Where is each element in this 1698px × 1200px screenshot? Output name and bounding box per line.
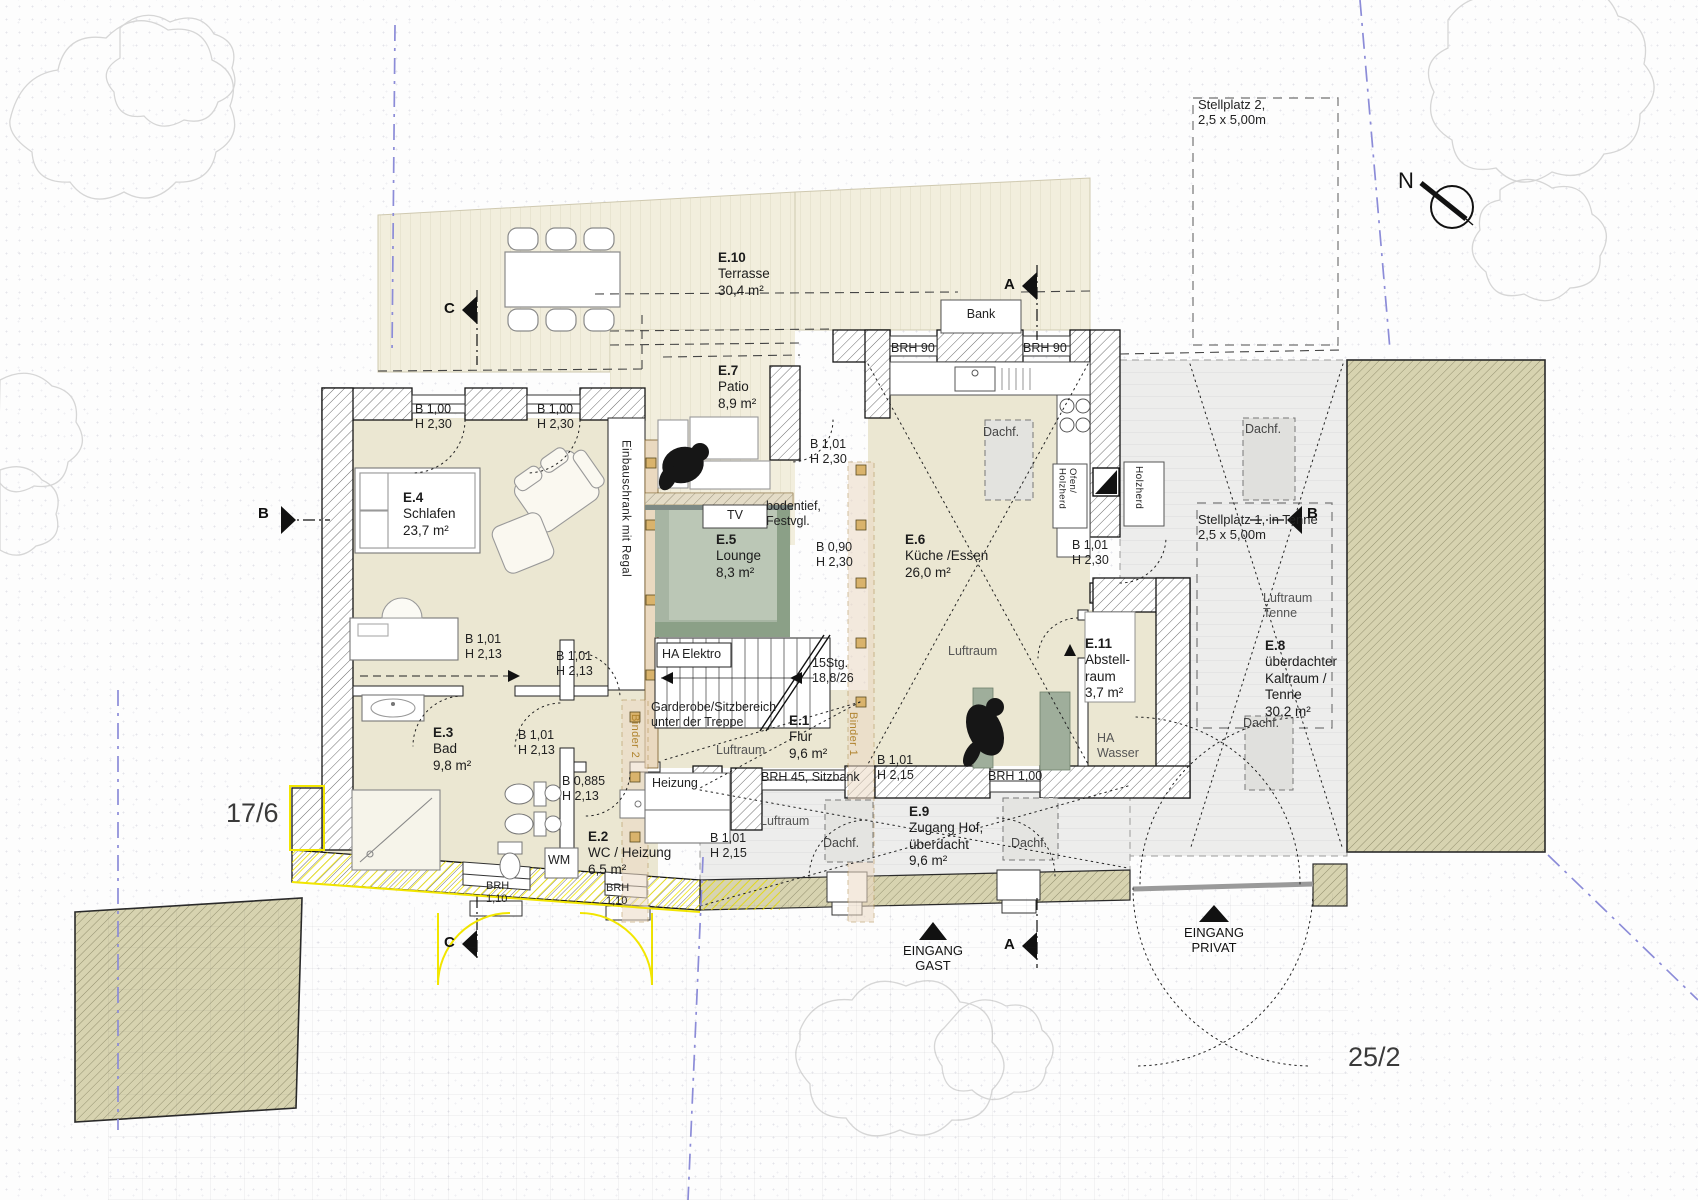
section-b-right: B [1307,505,1318,522]
einbauschrank-label: Einbauschrank mit Regal [618,440,632,585]
north-label: N [1398,168,1414,194]
room-label-bad: E.3Bad9,8 m² [433,725,471,774]
ofen-holzherd-label: Ofen/ Holzherd [1056,468,1077,528]
dim-brh110-1: BRH 1,10 [486,880,509,906]
bank-label: Bank [941,307,1021,322]
ha-elektro-label: HA Elektro [662,647,721,662]
room-label-patio: E.7Patio8,9 m² [718,363,756,412]
section-c-bottom: C [444,934,455,951]
dim-door-wc: B 0,885 H 2,13 [562,774,605,804]
floor-plan-page: { "meta": { "north_label": "N", "parcel_… [0,0,1698,1200]
luftraum-tenne: Luftraum Tenne [1263,591,1312,621]
dim-brh45-sitzbank: BRH 45, Sitzbank [761,770,860,785]
shower [352,790,440,870]
garderobe-note: Garderobe/Sitzbereich unter der Treppe [651,700,776,730]
stellplatz-1-note: Stellplatz 1, in Tenne 2,5 x 5,00m [1198,512,1318,542]
section-a-bottom: A [1004,936,1015,953]
room-label-lounge: E.5Lounge8,3 m² [716,532,761,581]
tenne-threshold [1133,884,1313,889]
glazing-note: bodentief, Festvgl. [766,499,821,529]
holzherd-label: Holzherd [1132,466,1144,526]
section-c-top: C [444,300,455,317]
luftraum-e9: Luftraum [760,814,809,829]
room-label-wc: E.2WC / Heizung6,5 m² [588,829,671,878]
lounge-step-right [777,510,790,637]
wm-label: WM [548,853,570,868]
section-b-left: B [258,505,269,522]
dachf-e9-right: Dachf. [1011,836,1047,851]
dim-window-2: B 1,00 H 2,30 [537,402,574,432]
bath-sink [362,695,424,721]
stellplatz-2-note: Stellplatz 2, 2,5 x 5,00m [1198,97,1266,127]
stellplatz2-box [1193,98,1338,345]
room-label-terrasse: E.10Terrasse30,4 m² [718,250,770,299]
dachf-kitchen: Dachf. [983,425,1019,440]
dim-window-1: B 1,00 H 2,30 [415,402,452,432]
parcel-number-left: 17/6 [226,798,279,829]
heizung-label: Heizung [652,776,698,791]
entrance-privat-label: EINGANG PRIVAT [1178,925,1250,955]
luftraum-kitchen: Luftraum [948,644,997,659]
tv-label: TV [703,508,767,523]
neighbor-building-east [1347,360,1545,852]
binder-1-label: Binder 1 [846,712,859,772]
dim-brh100: BRH 1,00 [988,769,1042,784]
dachf-e9-left: Dachf. [823,836,859,851]
dim-brh90-2: BRH 90 [1023,341,1067,356]
dim-door-e9-right: B 1,01 H 2,15 [877,753,914,783]
dim-brh110-2: BRH 1,10 [606,882,629,908]
dim-kitchen-door: B 1,01 H 2,30 [1072,538,1109,568]
dachf-tenne-low: Dachf. [1243,716,1279,731]
room-label-tenne: E.8überdachter Kaltraum / Tenne30,2 m² [1265,638,1337,720]
room-label-abstellraum: E.11Abstell- raum3,7 m² [1085,636,1130,702]
room-label-flur: E.1Flur9,6 m² [789,713,827,762]
ha-wasser-label: HA Wasser [1097,731,1139,761]
wood-stove-icon [1093,468,1119,496]
room-label-schlafen: E.4Schlafen23,7 m² [403,490,456,539]
section-a-top: A [1004,276,1015,293]
dim-door-bad: B 1,01 H 2,13 [518,728,555,758]
terrace-dining-set [505,228,620,331]
dim-door-hall: B 1,01 H 2,13 [556,649,593,679]
courtyard-paving [108,893,1348,1200]
dim-door-e9-left: B 1,01 H 2,15 [710,831,747,861]
room-label-kueche: E.6Küche /Essen26,0 m² [905,532,988,581]
room-label-zugang-hof: E.9Zugang Hof, überdacht9,6 m² [909,804,983,870]
entrance-gast-label: EINGANG GAST [898,943,968,973]
luftraum-flur: Luftraum [716,743,765,758]
parcel-number-right: 25/2 [1348,1042,1401,1073]
dachf-tenne-up: Dachf. [1245,422,1281,437]
lounge-step-bottom [655,622,790,637]
binder-2-label: Binder 2 [628,714,641,774]
stairs-note: 15Stg. 18,8/26 [812,656,854,686]
dim-door-bedroom: B 1,01 H 2,13 [465,632,502,662]
dim-brh90-1: BRH 90 [891,341,935,356]
dim-patio-door: B 1,01 H 2,30 [810,437,847,467]
north-arrow [1421,183,1473,228]
dim-kitchen-window: B 0,90 H 2,30 [816,540,853,570]
